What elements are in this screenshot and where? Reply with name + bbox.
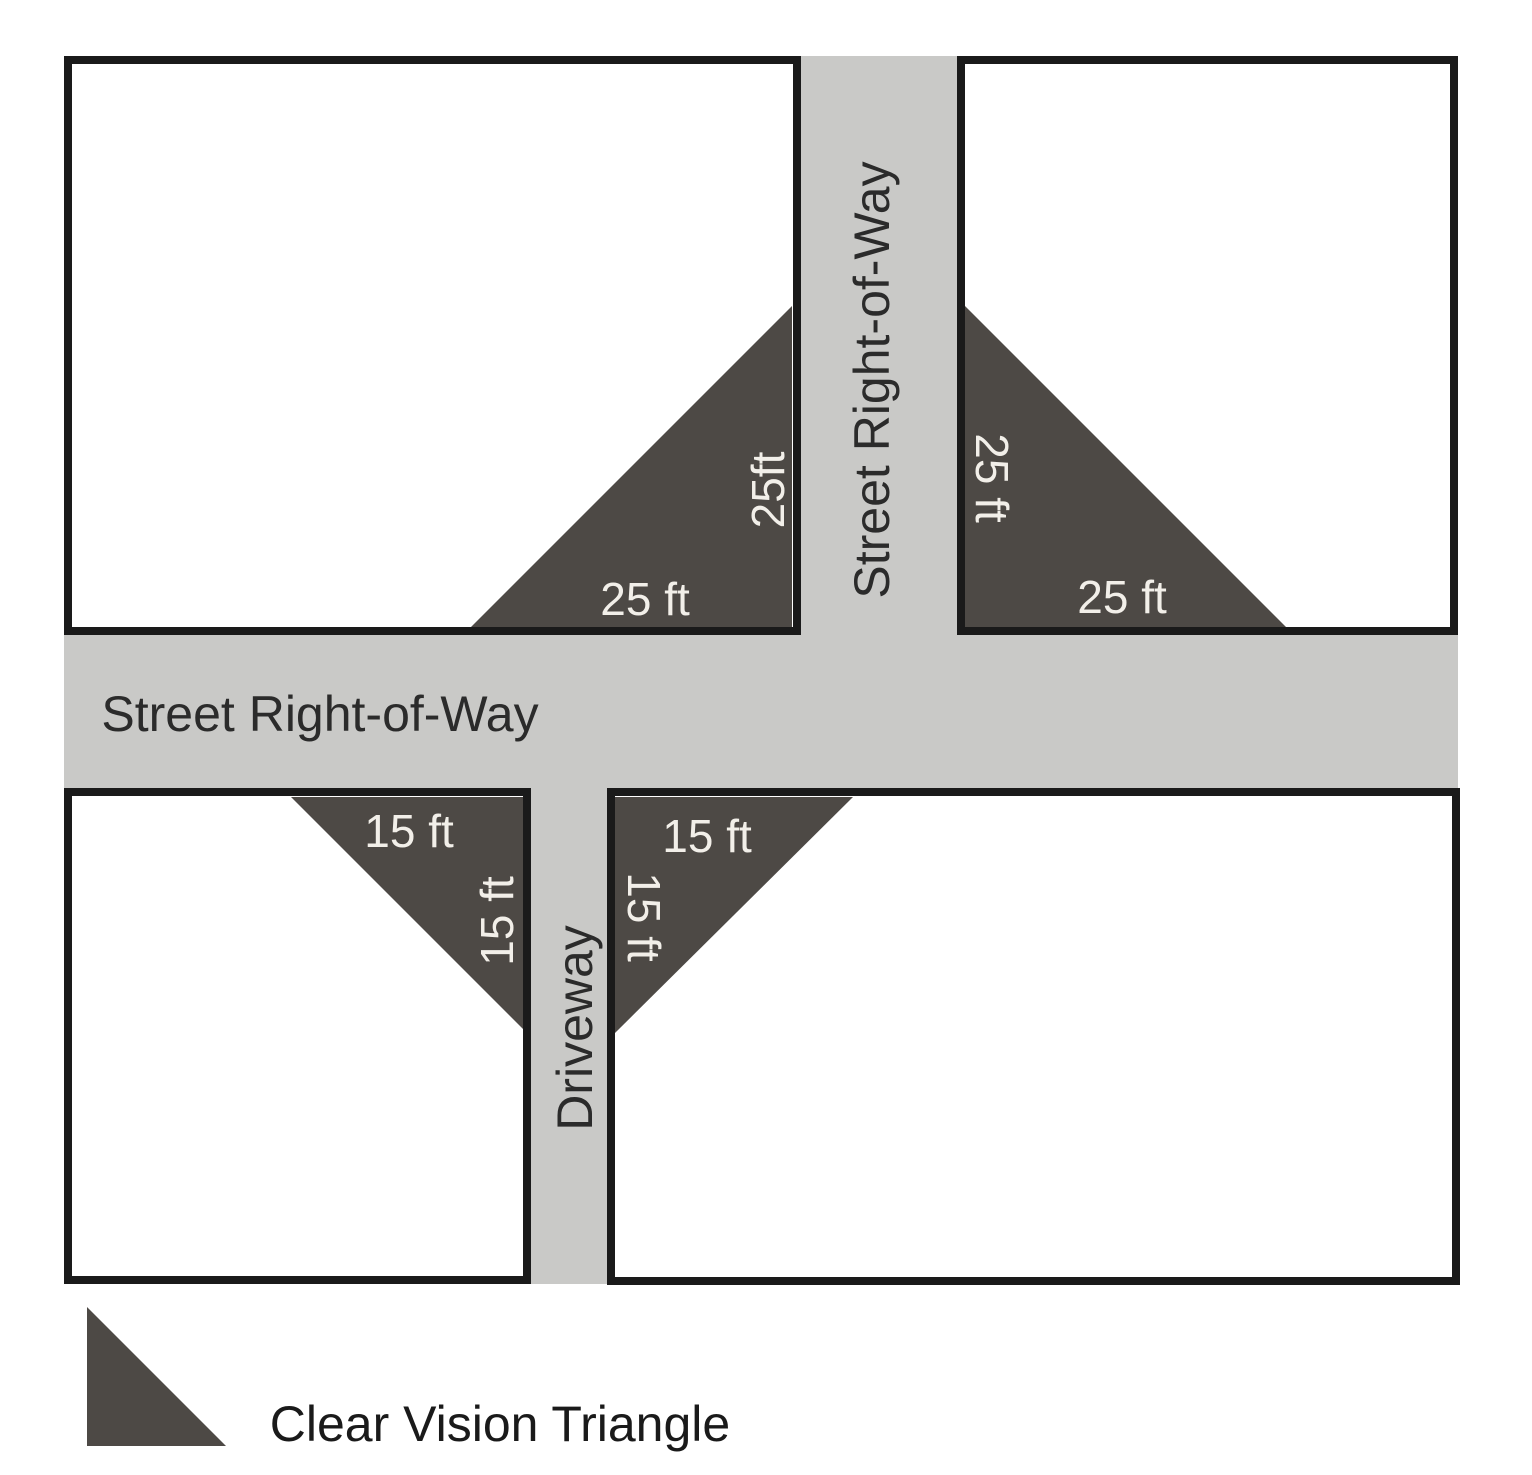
vertical-street-label: Street Right-of-Way [843,161,901,598]
dim-25ft-topright-side: 25 ft [965,433,1019,523]
dim-15ft-bottomleft-side: 15 ft [470,876,524,966]
driveway-label: Driveway [546,925,604,1131]
legend-triangle-swatch [87,1307,226,1446]
dim-15ft-bottomright-side: 15 ft [617,872,671,962]
dim-25ft-topright-bottom: 25 ft [1077,570,1167,624]
dim-25ft-topleft-side: 25ft [741,452,795,529]
legend-label: Clear Vision Triangle [270,1395,730,1453]
dim-25ft-topleft-bottom: 25 ft [600,572,690,626]
lot-top-right [957,56,1458,635]
lot-top-left [64,56,801,635]
horizontal-street-label: Street Right-of-Way [101,685,538,743]
dim-15ft-bottomleft-top: 15 ft [364,804,454,858]
lot-bottom-left [64,788,531,1284]
clear-vision-diagram: Street Right-of-Way Street Right-of-Way … [0,0,1532,1475]
dim-15ft-bottomright-top: 15 ft [662,809,752,863]
